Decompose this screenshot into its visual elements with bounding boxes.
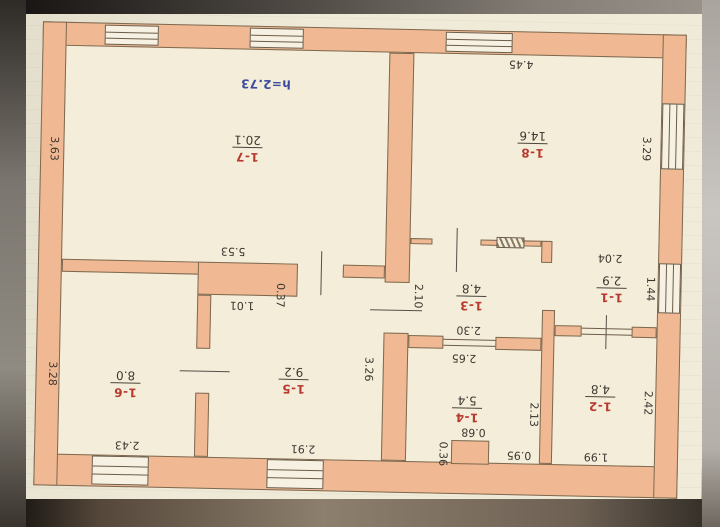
interior-wall-room8-bottom-c bbox=[523, 240, 541, 246]
interior-wall-room6-room5-lower bbox=[194, 393, 209, 457]
window-top-2 bbox=[249, 28, 303, 49]
room-area: 4.8 bbox=[462, 281, 481, 295]
interior-wall-room1-room2-left bbox=[555, 325, 582, 337]
room-area: 9.2 bbox=[284, 364, 303, 378]
room-area: 8.0 bbox=[116, 368, 135, 382]
dim-label-326: 3.26 bbox=[362, 357, 376, 382]
dim-label-291: 2.91 bbox=[291, 442, 316, 456]
room-label-1-5: 1-5 9.2 bbox=[278, 364, 309, 395]
vent-hatch bbox=[496, 237, 524, 249]
interior-wall-room8-bottom-b bbox=[480, 240, 497, 246]
dim-label-243: 2.43 bbox=[115, 438, 140, 452]
room-label-1-4: 1-4 5.4 bbox=[452, 393, 483, 424]
window-top-1 bbox=[105, 25, 159, 46]
room-area: 14.6 bbox=[519, 128, 546, 142]
dim-label-553: 5.53 bbox=[221, 245, 246, 259]
window-right-2 bbox=[658, 263, 681, 313]
interior-wall-room6-room5-upper bbox=[196, 295, 211, 349]
interior-wall-main-divider-lower bbox=[381, 333, 409, 461]
window-bottom-2 bbox=[266, 459, 324, 489]
interior-wall-room7-bottom-right bbox=[343, 265, 385, 279]
interior-wall-main-divider-upper bbox=[385, 53, 415, 283]
window-top-3 bbox=[445, 32, 512, 53]
room-label-1-2: 1-2 4.8 bbox=[585, 381, 616, 412]
room-number: 1-5 bbox=[282, 381, 305, 395]
wall-stub-hall-room1 bbox=[541, 241, 552, 263]
room-number: 1-1 bbox=[600, 290, 623, 304]
room-area: 5.4 bbox=[457, 393, 476, 407]
dim-label-095: 0.95 bbox=[507, 449, 532, 463]
room-number: 1-3 bbox=[459, 298, 482, 312]
dim-label-230: 2.30 bbox=[456, 324, 481, 338]
window-right-1 bbox=[661, 103, 684, 169]
room-number: 1-4 bbox=[455, 410, 478, 424]
room-label-1-3: 1-3 4.8 bbox=[456, 281, 487, 312]
interior-wall-hall-room4-right bbox=[495, 337, 541, 351]
dim-label-199: 1.99 bbox=[584, 450, 609, 464]
room-area: 2.9 bbox=[602, 273, 621, 287]
room-label-1-6: 1-6 8.0 bbox=[110, 368, 141, 399]
dim-label-036: 0.36 bbox=[436, 441, 450, 466]
room-number: 1-2 bbox=[588, 398, 611, 412]
dim-label-204: 2.04 bbox=[598, 251, 623, 265]
dim-label-445: 4.45 bbox=[509, 58, 534, 72]
floor-plan-photo: 1-7 20.1 1-8 14.6 1-3 4.8 1-1 2.9 1-4 5.… bbox=[0, 0, 720, 527]
interior-wall-hall-room4-left bbox=[408, 335, 443, 349]
dim-label-210: 2.10 bbox=[412, 284, 426, 309]
ceiling-height-label: h=2.73 bbox=[241, 76, 291, 91]
dim-label-144: 1.44 bbox=[644, 277, 658, 302]
room-label-1-8: 1-8 14.6 bbox=[517, 128, 548, 159]
dim-label-328: 3.28 bbox=[46, 361, 60, 386]
room-label-1-1: 1-1 2.9 bbox=[596, 273, 627, 304]
dim-label-242: 2.42 bbox=[641, 391, 655, 416]
dim-label-213: 2.13 bbox=[527, 402, 541, 427]
dim-label-068: 0.68 bbox=[461, 426, 486, 440]
dim-label-329: 3.29 bbox=[640, 137, 654, 162]
dim-label-363: 3,63 bbox=[48, 136, 62, 161]
interior-wall-room8-bottom-a bbox=[410, 238, 432, 244]
room-area: 20.1 bbox=[234, 132, 261, 146]
dim-label-037: 0.37 bbox=[274, 283, 288, 308]
room-area: 4.8 bbox=[591, 382, 610, 396]
room-label-1-7: 1-7 20.1 bbox=[232, 132, 263, 163]
scanned-paper: 1-7 20.1 1-8 14.6 1-3 4.8 1-1 2.9 1-4 5.… bbox=[0, 0, 720, 527]
window-bottom-1 bbox=[91, 455, 149, 485]
room-number: 1-8 bbox=[521, 145, 544, 159]
dim-label-265: 2.65 bbox=[452, 351, 477, 365]
interior-wall-room1-room2-right bbox=[632, 327, 657, 339]
room-number: 1-6 bbox=[114, 384, 137, 398]
dim-label-101: 1.01 bbox=[230, 299, 255, 313]
stove-notch bbox=[451, 440, 489, 465]
room-number: 1-7 bbox=[235, 149, 258, 163]
